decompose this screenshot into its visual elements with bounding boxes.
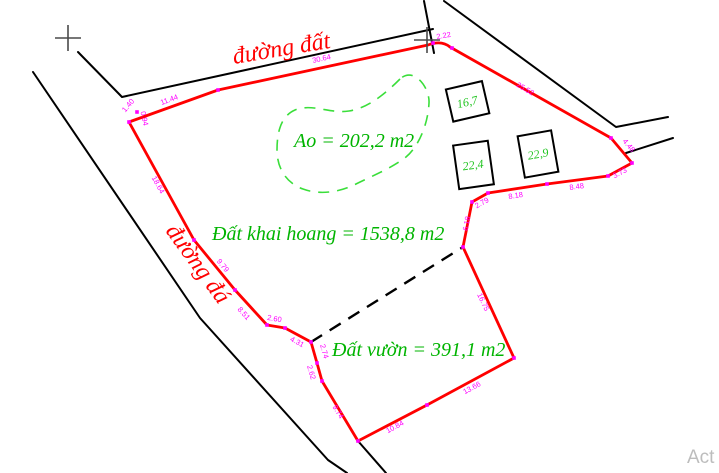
vertex-marker xyxy=(630,161,634,165)
cadastral-survey-drawing: 16,7 22,4 22,9 đường đất đường đá Ao = 2… xyxy=(0,0,719,473)
garden-area-label: Đất vườn = 391,1 m2 xyxy=(331,339,505,361)
vertex-marker xyxy=(127,120,131,124)
dimension-label: 10.84 xyxy=(384,418,405,435)
vertex-marker xyxy=(545,182,549,186)
left-road-east-edge-continuation xyxy=(358,441,386,473)
vertex-marker xyxy=(425,403,429,407)
vertex-marker xyxy=(606,174,610,178)
dimension-label: 2.62 xyxy=(305,364,318,381)
building-1-area-label: 16,7 xyxy=(455,93,480,112)
vertex-marker xyxy=(283,326,287,330)
vertex-marker xyxy=(320,379,324,383)
dimension-label: 6.18 xyxy=(461,215,473,231)
building-1: 16,7 xyxy=(446,81,489,121)
vertex-marker xyxy=(461,245,465,249)
dimension-label: 18.64 xyxy=(150,174,167,195)
reclaimed-area-label: Đất khai hoang = 1538,8 m2 xyxy=(211,223,444,245)
dimension-label: 25.52 xyxy=(515,80,536,97)
dimension-label: 2.79 xyxy=(473,195,490,210)
vertex-marker xyxy=(135,110,139,114)
dimension-label: 16.75 xyxy=(475,292,491,313)
survey-cross-left xyxy=(55,25,81,51)
vertex-marker xyxy=(486,191,490,195)
parcel-divider-dashed-line xyxy=(311,247,463,342)
vertex-marker xyxy=(431,41,435,45)
building-3-area-label: 22,9 xyxy=(526,145,549,162)
dimension-label: 8.48 xyxy=(569,181,585,192)
vertex-marker xyxy=(450,46,454,50)
vertex-marker xyxy=(609,136,613,140)
vertex-marker xyxy=(265,323,269,327)
vertex-marker xyxy=(356,439,360,443)
building-2: 22,4 xyxy=(453,141,494,189)
vertex-marker xyxy=(216,88,220,92)
dimension-label: 13.66 xyxy=(461,379,482,396)
dimension-label: 8.18 xyxy=(508,190,524,201)
pond-area-label: Ao = 202,2 m2 xyxy=(292,130,414,152)
dimension-label: 0.94 xyxy=(139,110,151,126)
dimension-label: 2.60 xyxy=(266,313,282,324)
activate-windows-watermark: Act xyxy=(687,447,715,468)
building-2-area-label: 22,4 xyxy=(462,157,485,174)
survey-svg: 16,7 22,4 22,9 đường đất đường đá Ao = 2… xyxy=(0,0,719,473)
building-3: 22,9 xyxy=(518,130,559,177)
vertex-marker xyxy=(512,356,516,360)
vertex-marker xyxy=(309,340,313,344)
dimension-label: 1.40 xyxy=(120,97,136,114)
vertex-marker xyxy=(315,361,319,365)
dimension-label: 2.22 xyxy=(436,30,452,41)
dimension-label: 2.74 xyxy=(318,343,331,360)
